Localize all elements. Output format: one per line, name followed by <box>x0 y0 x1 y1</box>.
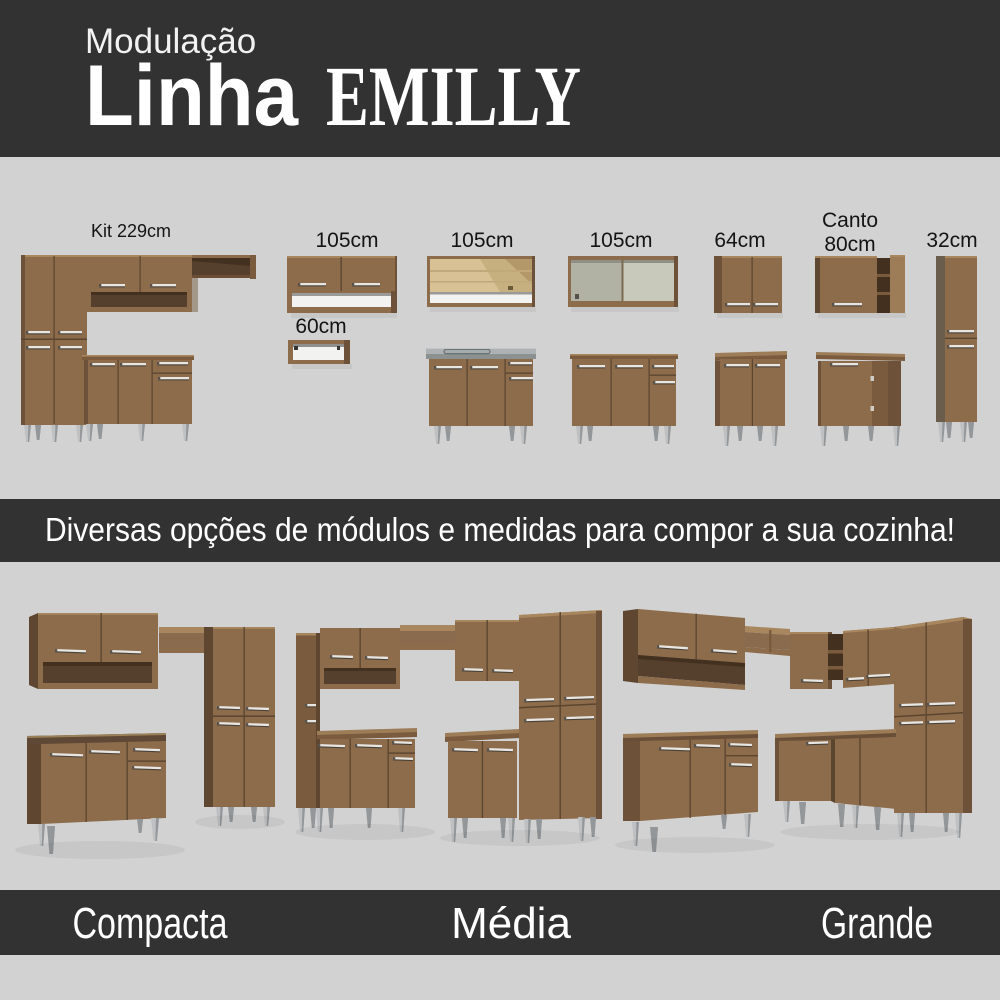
svg-text:105cm: 105cm <box>450 229 513 252</box>
svg-text:105cm: 105cm <box>315 229 378 252</box>
svg-text:Linha: Linha <box>85 48 299 144</box>
svg-text:Canto: Canto <box>822 209 878 232</box>
svg-text:Grande: Grande <box>821 899 933 948</box>
svg-text:Compacta: Compacta <box>73 899 228 948</box>
svg-text:Kit 229cm: Kit 229cm <box>91 221 171 241</box>
svg-text:105cm: 105cm <box>589 229 652 252</box>
svg-text:EMILLY: EMILLY <box>326 48 581 144</box>
svg-text:80cm: 80cm <box>824 233 875 256</box>
svg-text:Diversas opções de módulos e m: Diversas opções de módulos e medidas par… <box>45 511 955 548</box>
svg-text:32cm: 32cm <box>926 229 977 252</box>
svg-text:Média: Média <box>451 899 571 948</box>
svg-text:64cm: 64cm <box>714 229 765 252</box>
svg-text:60cm: 60cm <box>295 315 346 338</box>
